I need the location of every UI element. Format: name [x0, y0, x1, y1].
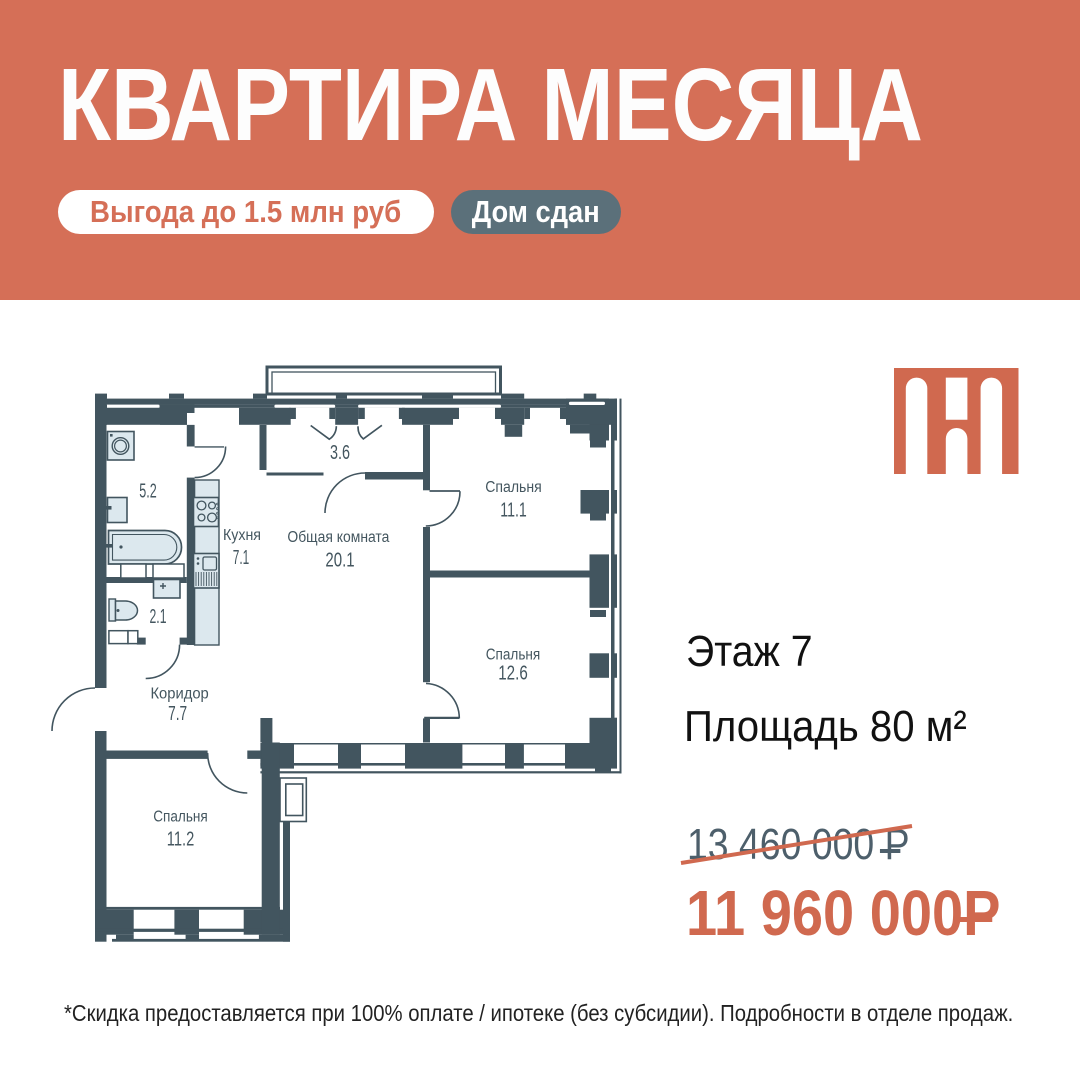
svg-text:7.1: 7.1: [233, 547, 250, 569]
svg-text:Кухня: Кухня: [223, 527, 261, 544]
svg-text:Спальня: Спальня: [485, 479, 542, 496]
svg-text:11.2: 11.2: [167, 829, 195, 851]
svg-text:20.1: 20.1: [325, 550, 354, 572]
svg-text:7.7: 7.7: [168, 703, 187, 725]
svg-text:2.1: 2.1: [150, 606, 167, 628]
svg-text:Общая комната: Общая комната: [287, 529, 389, 546]
svg-text:Спальня: Спальня: [153, 809, 208, 826]
svg-text:Коридор: Коридор: [150, 686, 208, 703]
svg-text:12.6: 12.6: [498, 663, 528, 685]
svg-text:Спальня: Спальня: [486, 647, 541, 664]
svg-text:5.2: 5.2: [139, 481, 157, 503]
svg-text:3.6: 3.6: [330, 442, 350, 464]
svg-text:11.1: 11.1: [500, 500, 527, 522]
